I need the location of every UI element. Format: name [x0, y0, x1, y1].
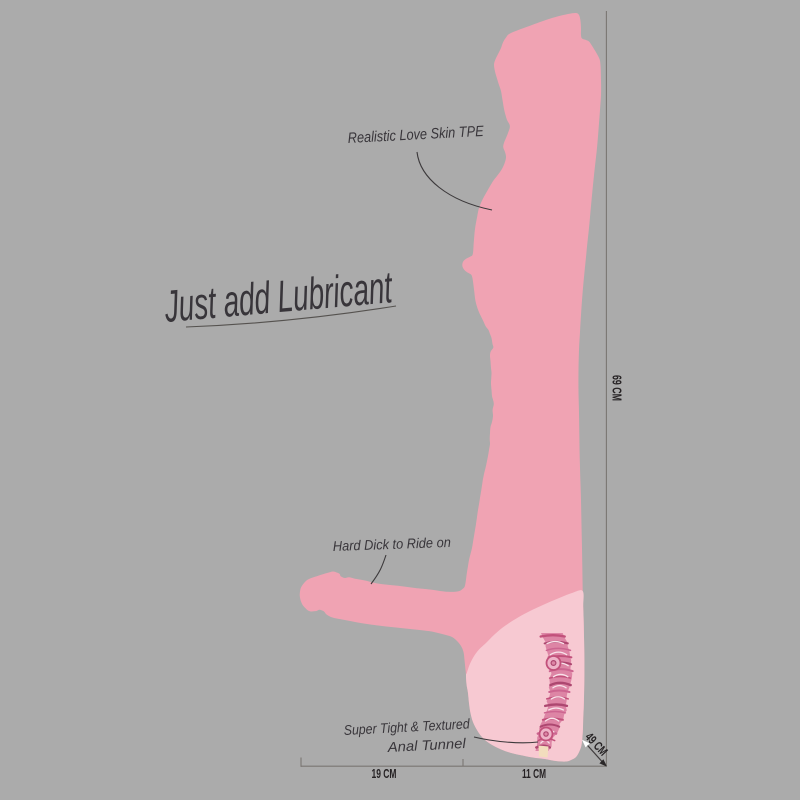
svg-text:19 CM: 19 CM [372, 767, 397, 781]
svg-text:69 CM: 69 CM [610, 375, 624, 401]
svg-text:11 CM: 11 CM [522, 767, 546, 781]
